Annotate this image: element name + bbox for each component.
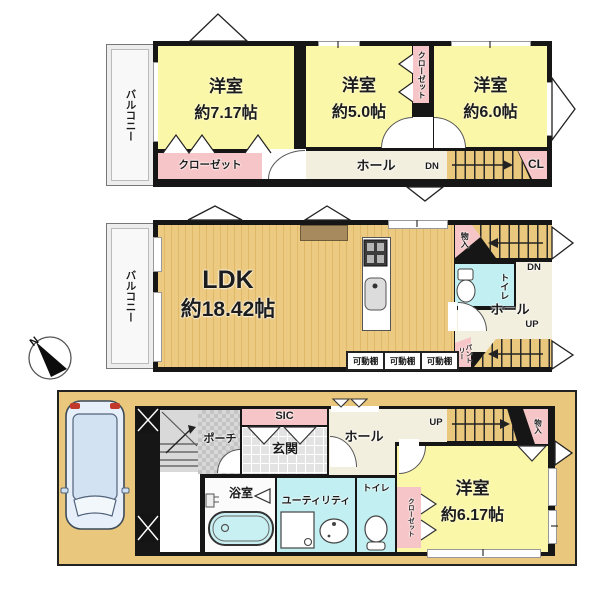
room-western-6-0-name: 洋室 (474, 71, 508, 96)
room-western-7-17: 洋室 約7.17帖 (158, 46, 294, 149)
gable-mark-3f-top (190, 14, 247, 41)
stairs-2f-dn-label: DN (521, 262, 547, 273)
gable-mark-2f-1 (188, 206, 242, 220)
bay-mark-3f-right (552, 78, 575, 140)
balcony-3f-label: バルコニー (107, 45, 153, 185)
toilet-1f-label: トイレ (357, 483, 395, 494)
storage-1f-label: 物入 (531, 412, 544, 440)
toilet-2f-label: トイレ (497, 268, 510, 304)
compass-north-label: N (28, 335, 42, 349)
gable-mark-2f-2 (305, 206, 350, 220)
stairs-3f (447, 151, 530, 179)
room-western-6-17-name: 洋室 (456, 474, 490, 499)
window-1f-right-2 (548, 510, 557, 544)
balcony-2f: バルコニー (106, 223, 154, 369)
room-western-6-17-size: 約6.17帖 (441, 501, 504, 525)
compass-icon: N (28, 335, 71, 379)
room-western-7-17-name: 洋室 (209, 72, 243, 97)
room-ldk-name: LDK (155, 266, 301, 294)
window-1f-bottom (427, 549, 541, 558)
closet-3f-b-label: クローゼット (413, 46, 429, 103)
closet-3f-a-label: クローゼット (158, 153, 262, 179)
hall-3f-label: ホール (336, 158, 416, 173)
window-2f-top (388, 220, 448, 229)
closet-3f-a: クローゼット (158, 153, 262, 179)
closet-3f-b: クローゼット (413, 46, 429, 103)
closet-1f-label: クローゼット (399, 489, 419, 546)
stairs-1f-up-label: UP (426, 417, 446, 428)
entrance-1f-label: 玄関 (262, 441, 308, 457)
stairs-2f-up-label: UP (519, 319, 545, 330)
room-western-7-17-size: 約7.17帖 (194, 99, 257, 123)
storage-2f-label: 物入 (457, 227, 471, 253)
utility-1f-label: ユーティリティ (278, 496, 354, 509)
bath-1f-label: 浴室 (214, 486, 268, 500)
kitchen-counter (362, 237, 391, 331)
room-ldk (158, 225, 454, 367)
shelf-2f-3: 可動棚 (420, 351, 459, 371)
sic-1f: SIC (242, 409, 327, 425)
stairs-1f (447, 409, 517, 441)
shelf-2f-1: 可動棚 (346, 351, 385, 371)
bay-mark-2f-right-2 (552, 341, 573, 369)
sic-1f-label: SIC (242, 409, 327, 425)
balcony-3f: バルコニー (106, 44, 154, 186)
utility-1f (277, 478, 355, 552)
stairs-3f-dn-label: DN (419, 161, 445, 172)
balcony-2f-label: バルコニー (107, 224, 153, 368)
room-western-5-0-name: 洋室 (342, 71, 376, 96)
bay-mark-2f-right-1 (552, 227, 573, 259)
closet-cl-3f-label: CL (524, 156, 548, 172)
exterior-stairs-1f (160, 410, 198, 472)
room-western-5-0-size: 約5.0帖 (332, 98, 386, 122)
porch-1f-label: ポーチ (194, 433, 246, 447)
hall-2f-label: ホール (470, 302, 550, 317)
shelf-2f-2: 可動棚 (383, 351, 422, 371)
stairwell-1f (160, 472, 200, 552)
window-1f-top (331, 406, 379, 412)
bay-mark-3f-bottom (407, 187, 443, 201)
counter-2f (300, 225, 348, 241)
floorplan-image: バルコニー 洋室 約7.17帖 洋室 約5.0帖 洋室 約6.0帖 クローゼット… (0, 0, 600, 590)
closet-1f: クローゼット (397, 487, 421, 548)
window-1f-right-1 (548, 468, 557, 506)
doorway-2f-hall (448, 302, 457, 331)
room-ldk-size: 約18.42帖 (135, 298, 321, 322)
room-western-6-0-size: 約6.0帖 (463, 98, 517, 122)
hall-1f-label: ホール (335, 429, 393, 444)
